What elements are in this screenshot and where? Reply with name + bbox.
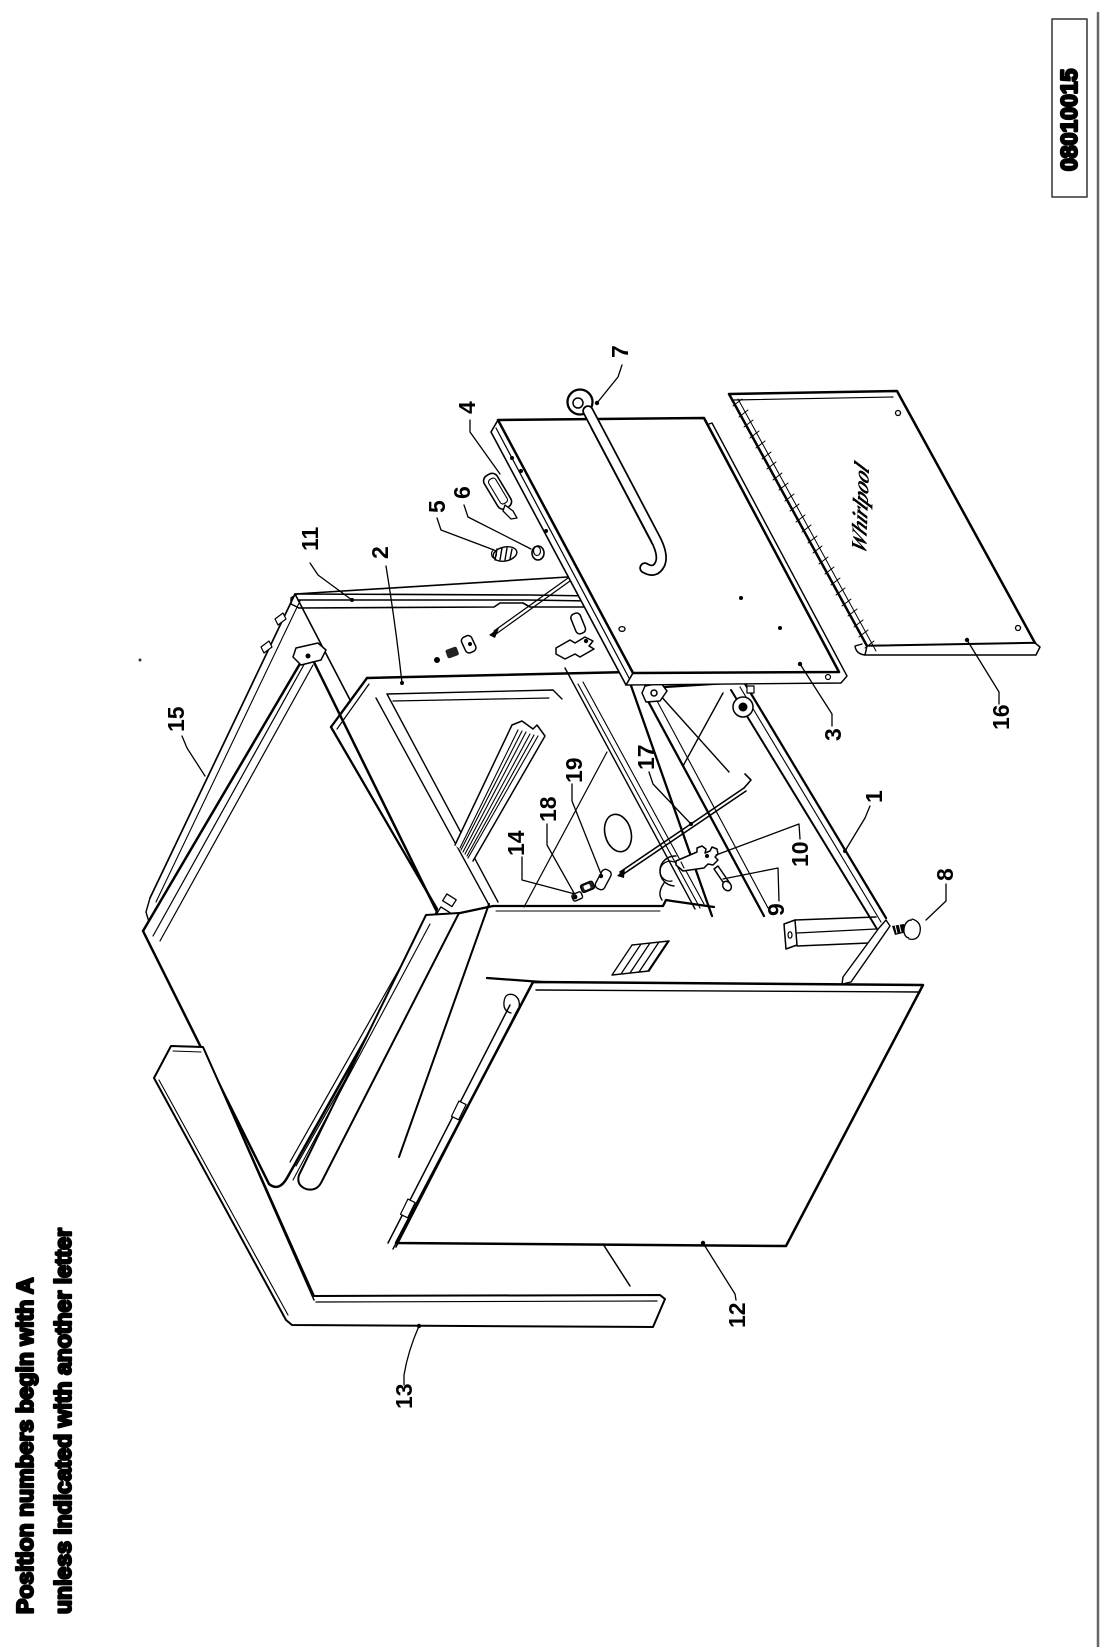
svg-text:10: 10 <box>787 841 813 867</box>
svg-text:1: 1 <box>861 790 887 803</box>
svg-text:14: 14 <box>503 830 529 856</box>
svg-text:13: 13 <box>391 1383 417 1409</box>
svg-text:9: 9 <box>763 903 789 916</box>
svg-text:unless indicated with another: unless indicated with another letter <box>50 1228 76 1614</box>
svg-text:18: 18 <box>535 796 561 822</box>
svg-text:2: 2 <box>367 546 393 559</box>
svg-text:8: 8 <box>932 868 958 881</box>
svg-text:19: 19 <box>561 757 587 783</box>
svg-text:4: 4 <box>454 401 480 414</box>
svg-text:6: 6 <box>449 486 475 499</box>
svg-text:3: 3 <box>820 728 846 741</box>
svg-text:12: 12 <box>724 1302 750 1328</box>
svg-text:17: 17 <box>633 744 659 770</box>
svg-text:16: 16 <box>988 704 1014 730</box>
svg-text:15: 15 <box>163 706 189 732</box>
svg-text:Position numbers begin with A: Position numbers begin with A <box>12 1278 38 1615</box>
svg-text:08010015: 08010015 <box>1056 68 1082 171</box>
svg-text:5: 5 <box>424 500 450 513</box>
svg-text:Whirlpool: Whirlpool <box>848 457 875 559</box>
svg-text:11: 11 <box>297 526 323 551</box>
svg-text:7: 7 <box>607 345 633 358</box>
